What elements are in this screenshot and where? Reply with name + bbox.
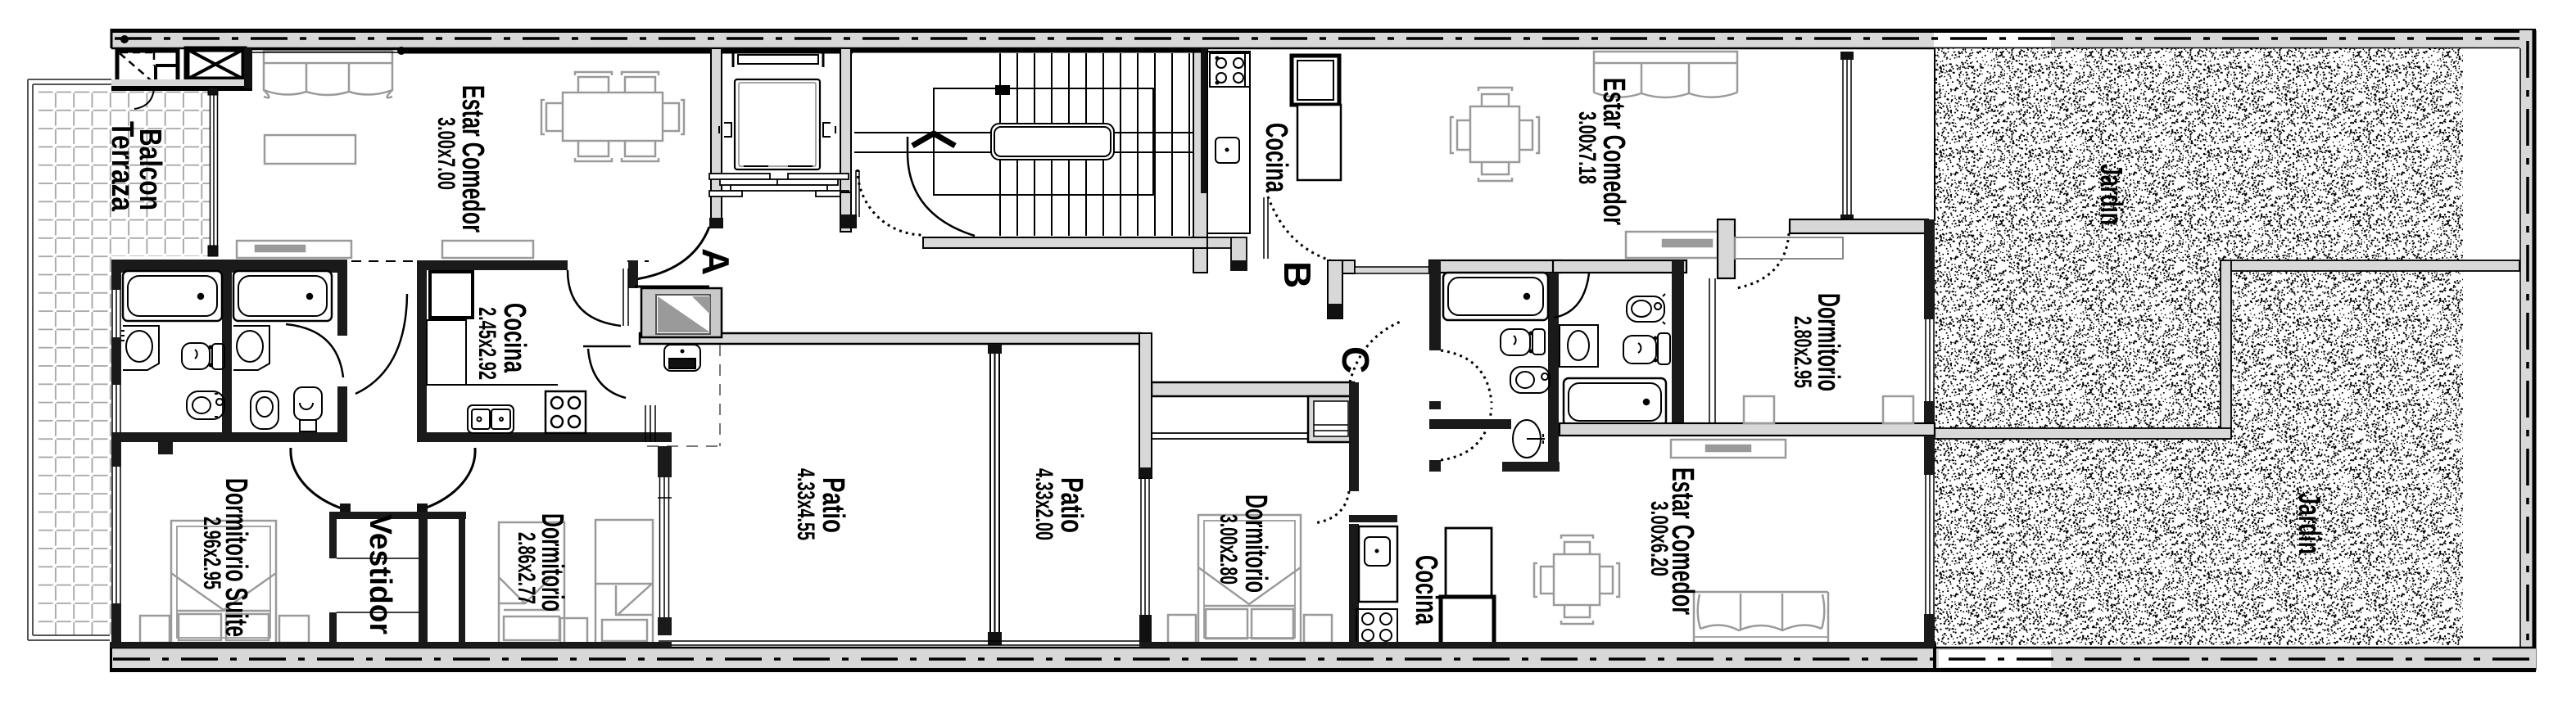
svg-text:Jardin: Jardin [2094, 164, 2128, 225]
svg-text:3.00x7.18: 3.00x7.18 [1573, 111, 1600, 184]
svg-text:3.00x7.00: 3.00x7.00 [432, 117, 460, 190]
svg-text:Jardin: Jardin [2292, 493, 2326, 554]
svg-text:3.00x2.80: 3.00x2.80 [1215, 514, 1242, 585]
svg-text:Cocina: Cocina [497, 303, 532, 373]
svg-text:Vestidor: Vestidor [363, 514, 397, 634]
svg-text:Cocina: Cocina [1259, 123, 1293, 193]
svg-text:Patio: Patio [1054, 477, 1089, 533]
svg-text:C: C [1334, 346, 1377, 373]
svg-text:Dormitorio: Dormitorio [1238, 494, 1273, 593]
svg-text:B: B [1276, 261, 1319, 288]
svg-text:2.45x2.92: 2.45x2.92 [473, 307, 500, 380]
svg-text:2.80x2.95: 2.80x2.95 [1789, 316, 1816, 388]
svg-text:Estar Comedor: Estar Comedor [1596, 78, 1631, 225]
svg-text:4.33x4.55: 4.33x4.55 [792, 468, 819, 540]
svg-text:Terraza: Terraza [105, 121, 139, 212]
svg-text:2.96x2.95: 2.96x2.95 [198, 517, 225, 589]
svg-text:4.33x2.00: 4.33x2.00 [1030, 468, 1057, 540]
svg-text:2.86x2.77: 2.86x2.77 [513, 532, 540, 604]
svg-text:Cocina: Cocina [1409, 555, 1443, 625]
svg-text:Estar Comedor: Estar Comedor [455, 85, 490, 233]
svg-text:Patio: Patio [816, 477, 850, 533]
svg-text:A: A [695, 248, 737, 275]
svg-text:3.00x6.20: 3.00x6.20 [1646, 501, 1673, 576]
